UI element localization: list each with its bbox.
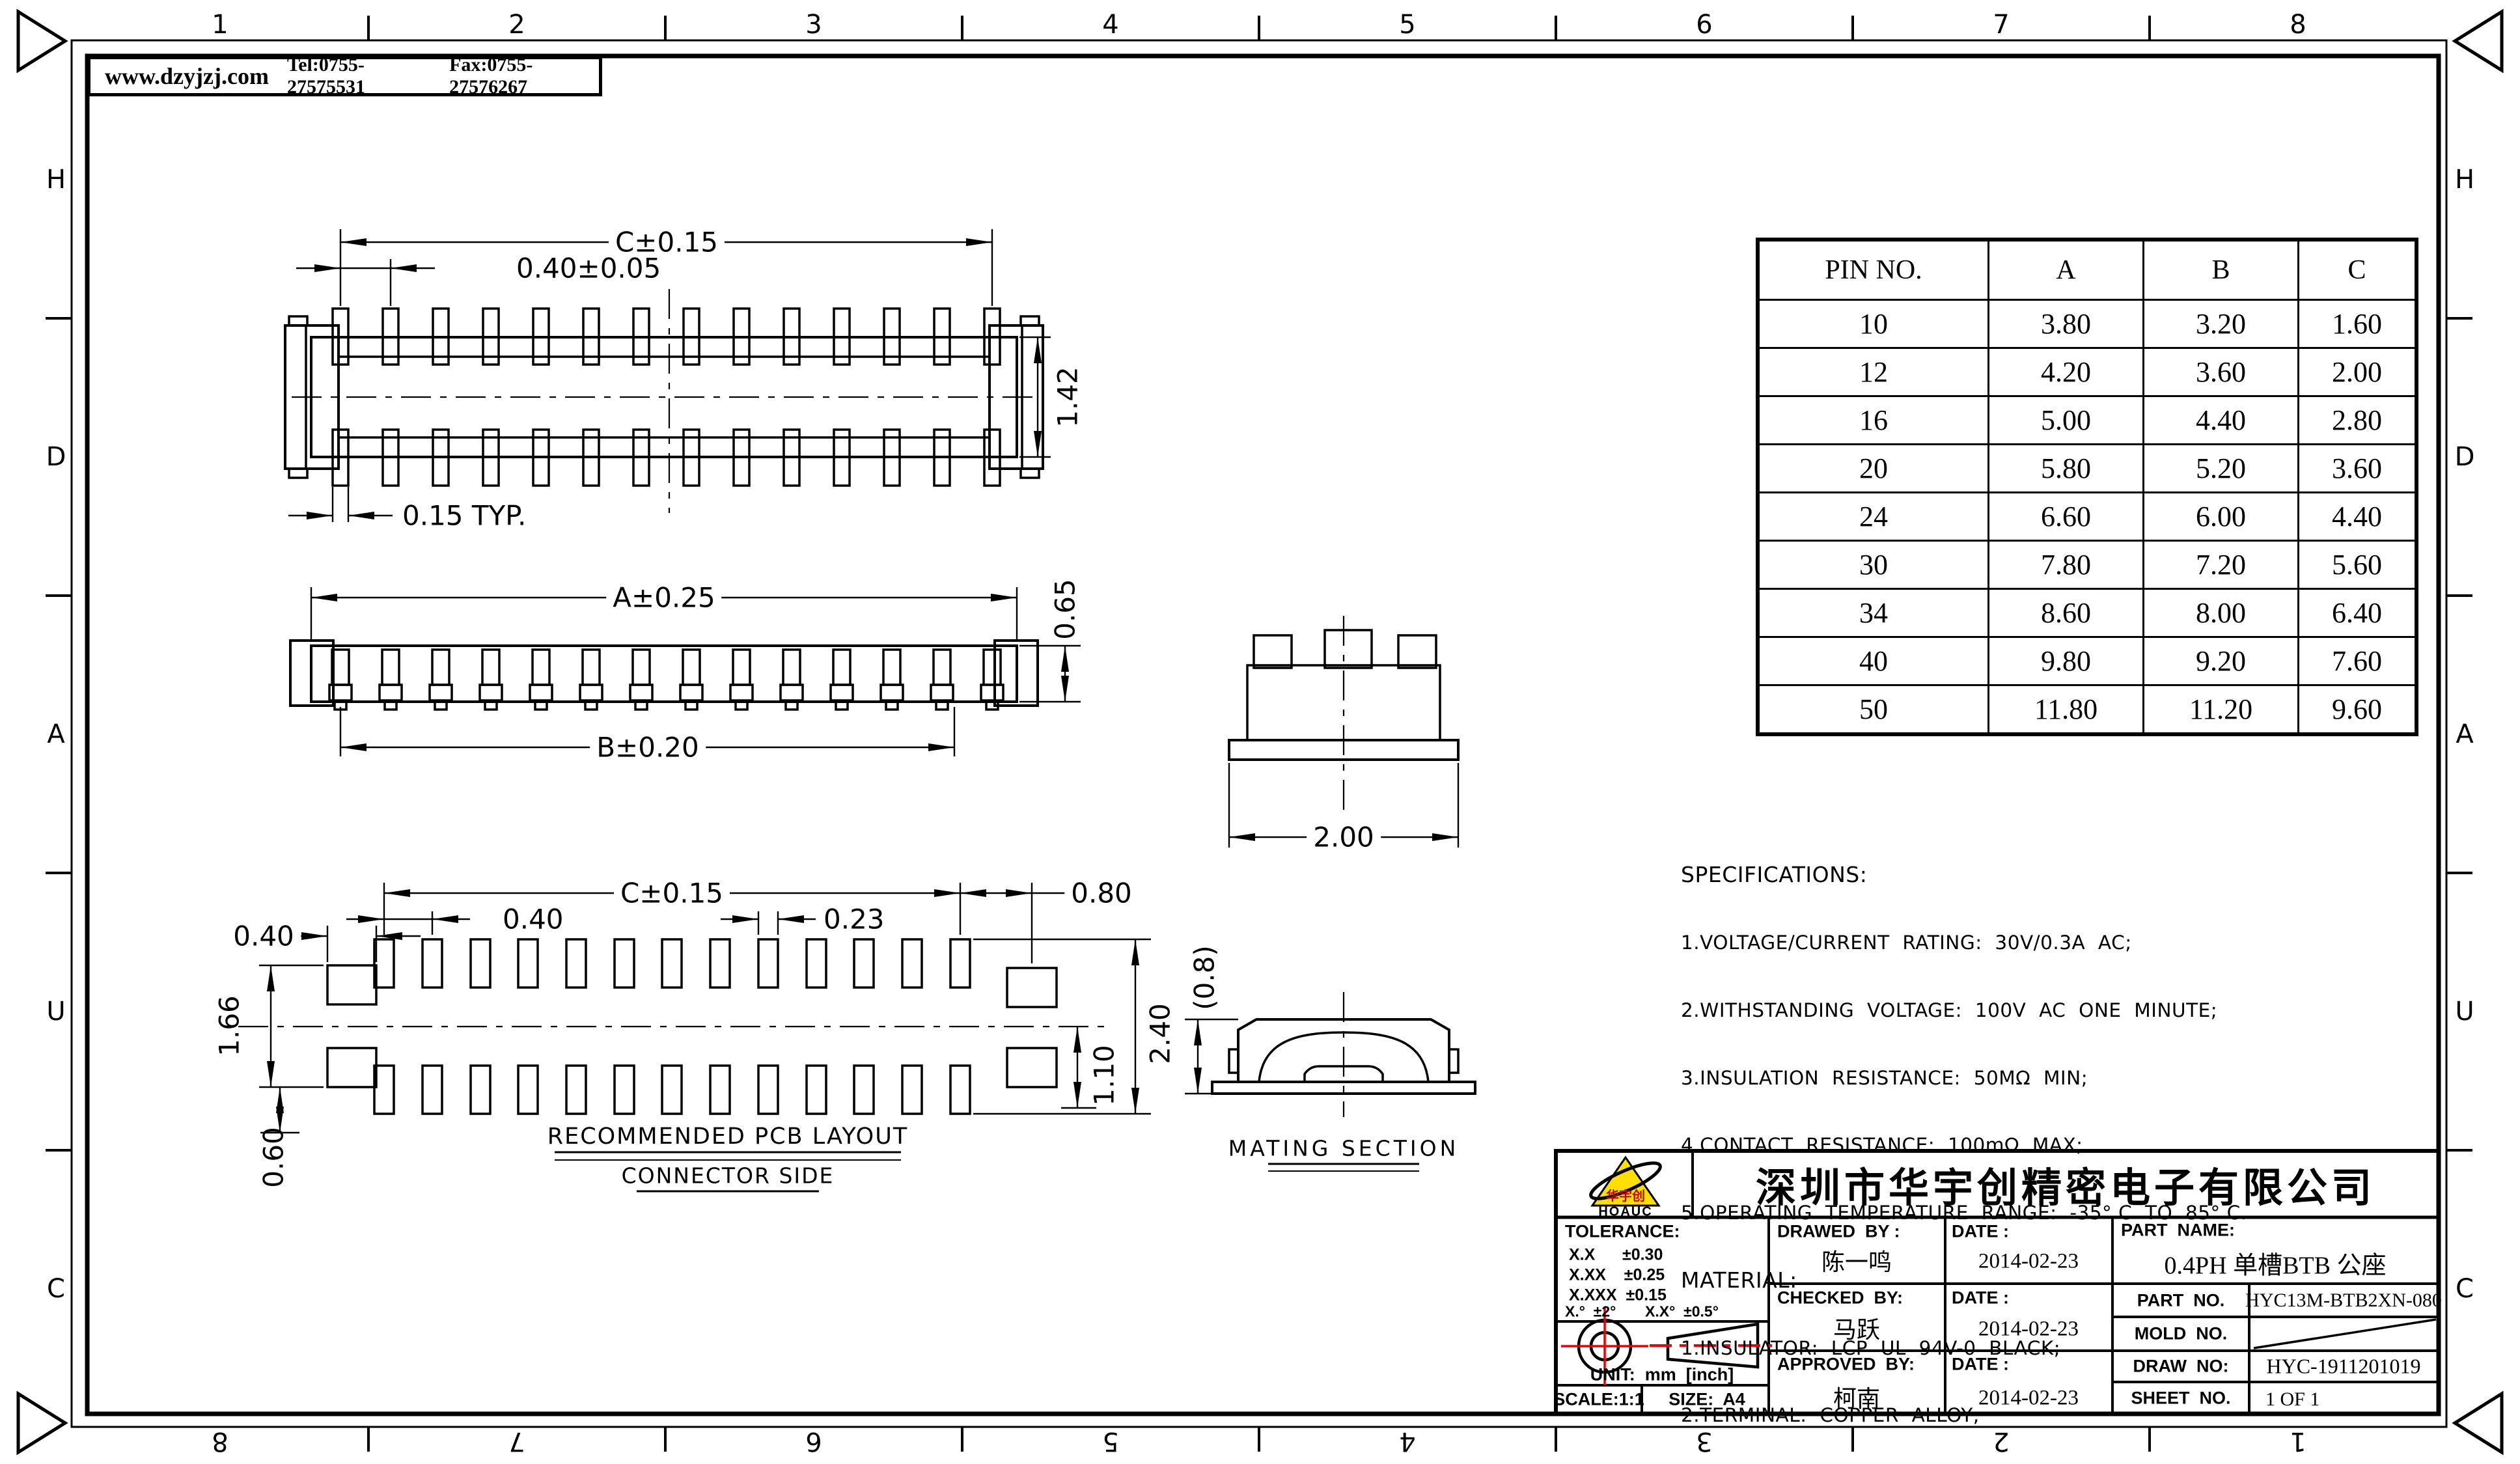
border-top-number: 5: [1399, 10, 1415, 40]
draw-no-label: DRAW NO:: [2133, 1357, 2229, 1377]
logo-cn-text: 华宇创: [1606, 1188, 1645, 1204]
spec-item: 4.CONTACT RESISTANCE: 100mΩ MAX;: [1681, 1134, 2305, 1157]
border-right-letter: A: [2456, 719, 2473, 749]
dim-label-110-pcb: 1.10: [1088, 1045, 1120, 1106]
sheet-no-label: SHEET NO.: [2131, 1388, 2230, 1409]
border-bottom-number: 4: [1399, 1426, 1415, 1456]
date-label: DATE :: [1952, 1222, 2009, 1242]
table-cell: 7.20: [2144, 541, 2299, 589]
header-contact-box: www.dzyjzj.com Tel:0755-27575531 Fax:075…: [87, 56, 602, 96]
table-cell: 2.00: [2299, 348, 2417, 396]
table-cell: 3.60: [2144, 348, 2299, 396]
border-top-number: 3: [805, 10, 822, 40]
tolerance-row: X.X ±0.30: [1569, 1246, 1663, 1265]
border-bottom-number: 7: [508, 1426, 525, 1456]
table-cell: 6.00: [2144, 493, 2299, 541]
table-row: 16 5.00 4.40 2.80: [1758, 396, 2416, 445]
date-approved: 2014-02-23: [1978, 1387, 2079, 1411]
dim-label-166-pcb: 1.66: [214, 995, 245, 1057]
table-cell: 11.80: [1989, 685, 2144, 735]
table-row: 34 8.60 8.00 6.40: [1758, 589, 2416, 637]
table-cell: 1.60: [2299, 300, 2417, 348]
dim-label-height-top: 1.42: [1052, 366, 1084, 428]
table-row: 20 5.80 5.20 3.60: [1758, 445, 2416, 493]
table-row: 40 9.80 9.20 7.60: [1758, 637, 2416, 685]
dim-label-240-pcb: 2.40: [1144, 1003, 1176, 1064]
border-left-letter: U: [46, 997, 65, 1027]
table-cell: 4.20: [1989, 348, 2144, 396]
mating-section-label: MATING SECTION: [1228, 1136, 1460, 1161]
dim-label-h-side: 0.65: [1049, 579, 1081, 640]
dim-label-pin-width: 0.15 TYP.: [402, 500, 526, 532]
border-top-number: 6: [1696, 10, 1712, 40]
table-cell: 10: [1758, 300, 1989, 348]
pcb-layout-title: RECOMMENDED PCB LAYOUT: [547, 1124, 908, 1150]
border-top-number: 1: [212, 10, 228, 40]
dim-label-060-pcb: 0.60: [258, 1127, 290, 1188]
table-row: 24 6.60 6.00 4.40: [1758, 493, 2416, 541]
table-cell: 9.60: [2299, 685, 2417, 735]
spec-item: 1.VOLTAGE/CURRENT RATING: 30V/0.3A AC;: [1681, 932, 2305, 954]
drawed-by-label: DRAWED BY :: [1777, 1222, 1900, 1242]
border-bottom-number: 5: [1102, 1426, 1118, 1456]
approved-by-label: APPROVED BY:: [1777, 1355, 1915, 1375]
tolerance-row: X.XXX ±0.15: [1569, 1286, 1667, 1305]
tolerance-angles: X.° ±2° X.X° ±0.5°: [1565, 1303, 1719, 1321]
table-header-row: PIN NO. A B C: [1758, 240, 2416, 300]
border-left-letter: A: [47, 719, 64, 749]
dim-label-end-pcb: 0.80: [1064, 877, 1139, 909]
company-logo: 华宇创: [1587, 1157, 1664, 1206]
dim-label-end-width: 2.00: [1307, 822, 1381, 853]
website-text: www.dzyjzj.com: [105, 62, 269, 90]
table-cell: 30: [1758, 541, 1989, 589]
border-left-letter: C: [47, 1274, 65, 1304]
mold-no-label: MOLD NO.: [2135, 1324, 2228, 1344]
table-cell: 4.40: [2299, 493, 2417, 541]
border-top-number: 8: [2290, 10, 2306, 40]
dim-label-pitch-top: 0.40±0.05: [516, 253, 661, 284]
sheet-no-value: 1 OF 1: [2265, 1388, 2319, 1411]
table-cell: 11.20: [2144, 685, 2299, 735]
table-cell: 8.60: [1989, 589, 2144, 637]
part-no-value: HYC13M-BTB2XN-080: [2245, 1290, 2442, 1312]
table-header: A: [1989, 240, 2144, 300]
table-cell: 3.80: [1989, 300, 2144, 348]
spec-item: 3.INSULATION RESISTANCE: 50MΩ MIN;: [1681, 1067, 2305, 1090]
dim-label-mating-height: (0.8): [1189, 945, 1221, 1010]
border-bottom-number: 8: [212, 1426, 228, 1456]
border-left-letter: H: [46, 165, 66, 195]
spec-item: 2.WITHSTANDING VOLTAGE: 100V AC ONE MINU…: [1681, 999, 2305, 1022]
border-right-letter: H: [2455, 165, 2474, 195]
table-header: PIN NO.: [1758, 240, 1989, 300]
table-cell: 24: [1758, 493, 1989, 541]
table-header: B: [2144, 240, 2299, 300]
company-name: 深圳市华宇创精密电子有限公司: [1756, 1155, 2375, 1213]
table-cell: 3.20: [2144, 300, 2299, 348]
drawed-by-name: 陈一鸣: [1821, 1243, 1892, 1277]
dim-label-pitch-pcb: 0.40: [503, 904, 564, 935]
unit-label: UNIT: mm [inch]: [1590, 1365, 1734, 1385]
table-cell: 7.80: [1989, 541, 2144, 589]
table-cell: 5.80: [1989, 445, 2144, 493]
dim-label-a-side: A±0.25: [606, 582, 721, 614]
tel-text: Tel:0755-27575531: [287, 54, 431, 98]
border-right-letter: D: [2455, 442, 2475, 472]
table-cell: 9.80: [1989, 637, 2144, 685]
border-top-number: 2: [508, 10, 525, 40]
table-cell: 5.20: [2144, 445, 2299, 493]
part-name-label: PART NAME:: [2121, 1221, 2235, 1241]
checked-by-label: CHECKED BY:: [1777, 1288, 1903, 1308]
table-cell: 5.60: [2299, 541, 2417, 589]
date-label: DATE :: [1952, 1288, 2009, 1308]
table-cell: 5.00: [1989, 396, 2144, 445]
end-view-drawing: [1229, 616, 1458, 848]
table-cell: 40: [1758, 637, 1989, 685]
dim-label-b-side: B±0.20: [590, 732, 706, 764]
dim-label-pad-pcb: 0.23: [824, 904, 885, 935]
table-cell: 9.20: [2144, 637, 2299, 685]
date-drawed: 2014-02-23: [1978, 1250, 2079, 1274]
pin-dimension-table: PIN NO. A B C 10 3.80 3.20 1.60 12 4.20 …: [1756, 238, 2418, 736]
checked-by-name: 马跃: [1833, 1311, 1880, 1345]
dim-label-leftpad-pcb: 0.40: [227, 920, 301, 952]
fax-text: Fax:0755-27576267: [449, 54, 599, 98]
table-cell: 16: [1758, 396, 1989, 445]
border-right-letter: U: [2455, 997, 2474, 1027]
border-left-letter: D: [46, 442, 66, 472]
table-cell: 50: [1758, 685, 1989, 735]
approved-by-name: 柯南: [1833, 1380, 1880, 1414]
border-top-number: 7: [1993, 10, 2009, 40]
part-no-label: PART NO.: [2137, 1291, 2225, 1311]
table-row: 30 7.80 7.20 5.60: [1758, 541, 2416, 589]
table-row: 10 3.80 3.20 1.60: [1758, 300, 2416, 348]
tolerance-title: TOLERANCE:: [1565, 1222, 1680, 1242]
scale-label: SCALE:1:1: [1553, 1390, 1644, 1410]
table-header: C: [2299, 240, 2417, 300]
date-checked: 2014-02-23: [1978, 1318, 2079, 1342]
border-top-number: 4: [1102, 10, 1118, 40]
table-cell: 7.60: [2299, 637, 2417, 685]
specs-title: SPECIFICATIONS:: [1681, 864, 2305, 887]
table-row: 12 4.20 3.60 2.00: [1758, 348, 2416, 396]
table-cell: 4.40: [2144, 396, 2299, 445]
dim-label-c-pcb: C±0.15: [614, 877, 730, 909]
part-name-value: 0.4PH 单槽BTB 公座: [2165, 1245, 2387, 1281]
logo-text: HOAUC: [1598, 1205, 1652, 1220]
table-cell: 2.80: [2299, 396, 2417, 445]
tolerance-row: X.XX ±0.25: [1569, 1266, 1665, 1285]
size-label: SIZE: A4: [1668, 1390, 1745, 1410]
table-cell: 8.00: [2144, 589, 2299, 637]
table-row: 50 11.80 11.20 9.60: [1758, 685, 2416, 735]
border-bottom-number: 6: [805, 1426, 822, 1456]
pcb-layout-subtitle: CONNECTOR SIDE: [622, 1163, 835, 1189]
drawing-sheet: 华宇创 www.dzyjzj.com Tel:0755-27575531 Fax…: [0, 0, 2520, 1464]
border-right-letter: C: [2456, 1274, 2474, 1304]
table-cell: 3.60: [2299, 445, 2417, 493]
table-cell: 20: [1758, 445, 1989, 493]
top-view-drawing: [285, 229, 1051, 522]
draw-no-value: HYC-1911201019: [2266, 1355, 2420, 1379]
table-cell: 6.40: [2299, 589, 2417, 637]
date-label: DATE :: [1952, 1355, 2009, 1375]
table-cell: 6.60: [1989, 493, 2144, 541]
table-cell: 12: [1758, 348, 1989, 396]
table-cell: 34: [1758, 589, 1989, 637]
